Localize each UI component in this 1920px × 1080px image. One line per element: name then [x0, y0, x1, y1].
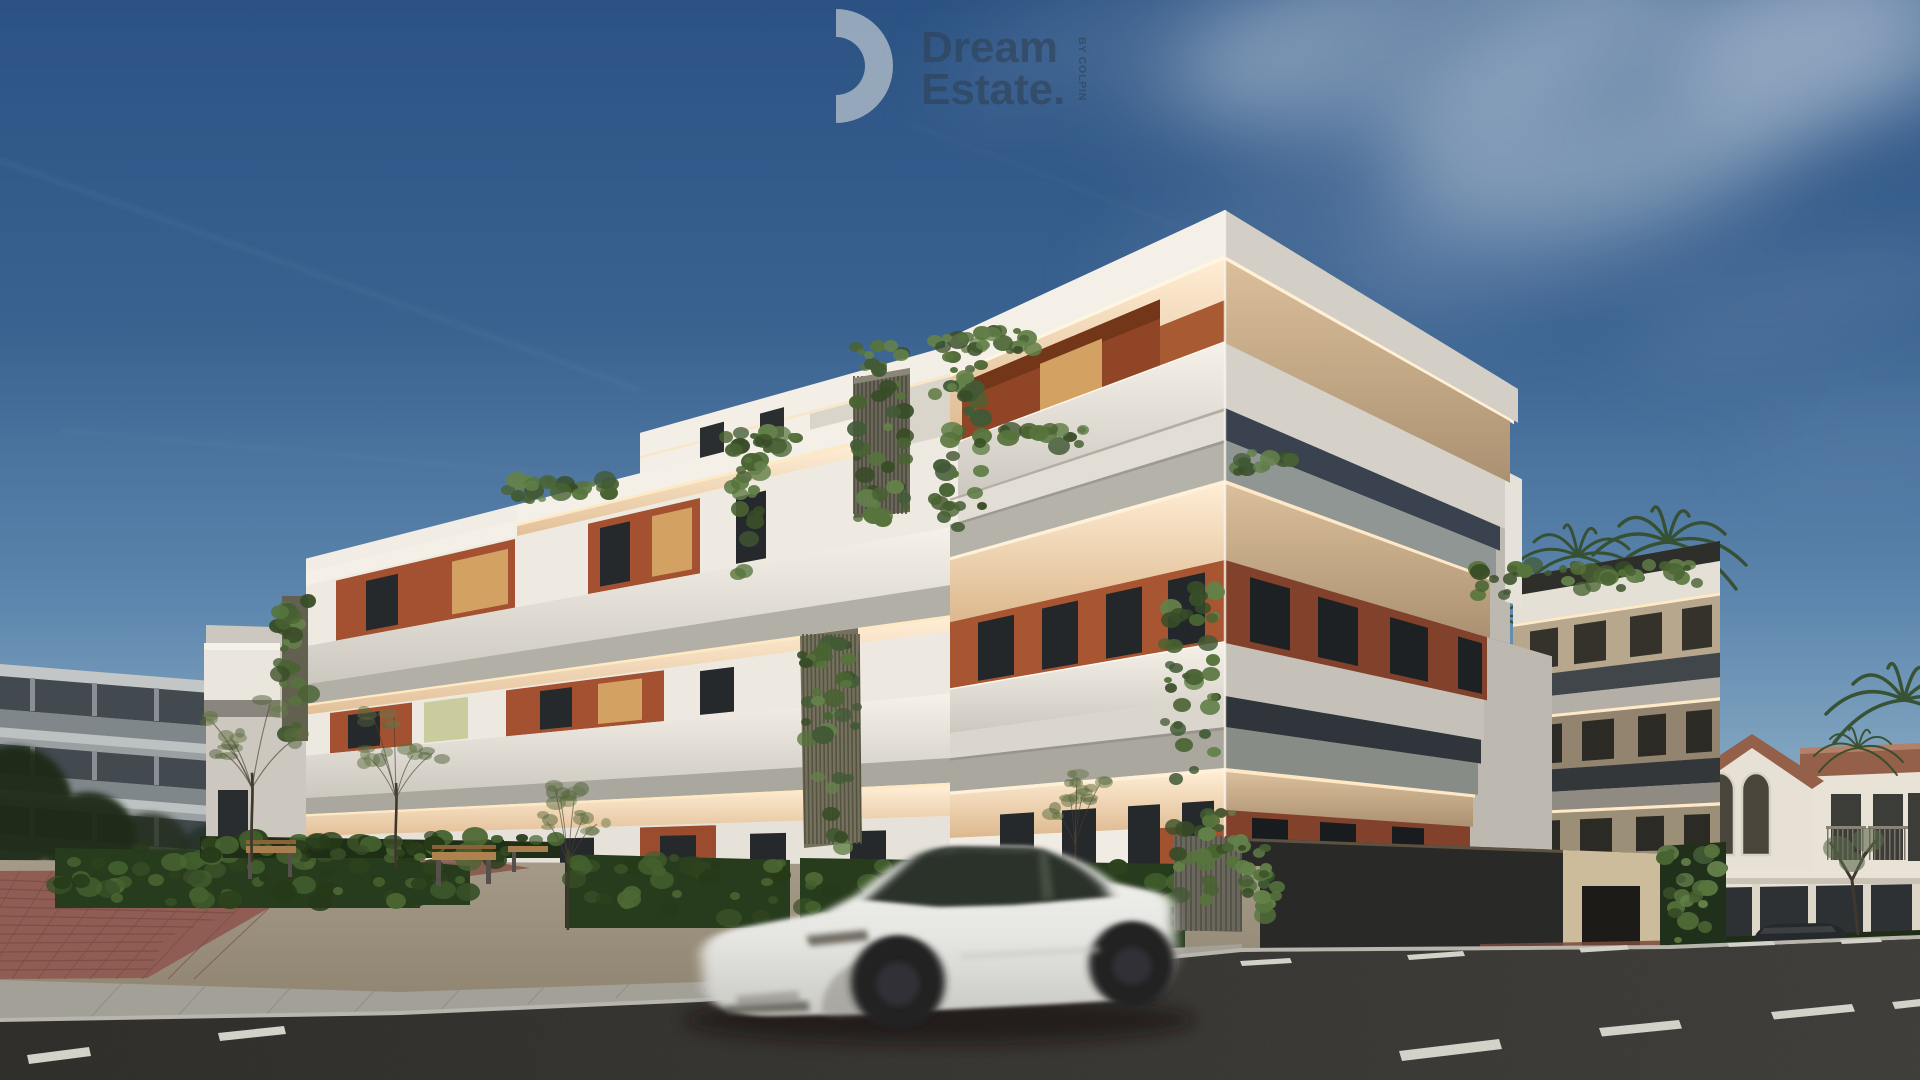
svg-text:Estate.: Estate. — [921, 65, 1065, 114]
svg-text:BY COLPIN: BY COLPIN — [1076, 37, 1088, 101]
